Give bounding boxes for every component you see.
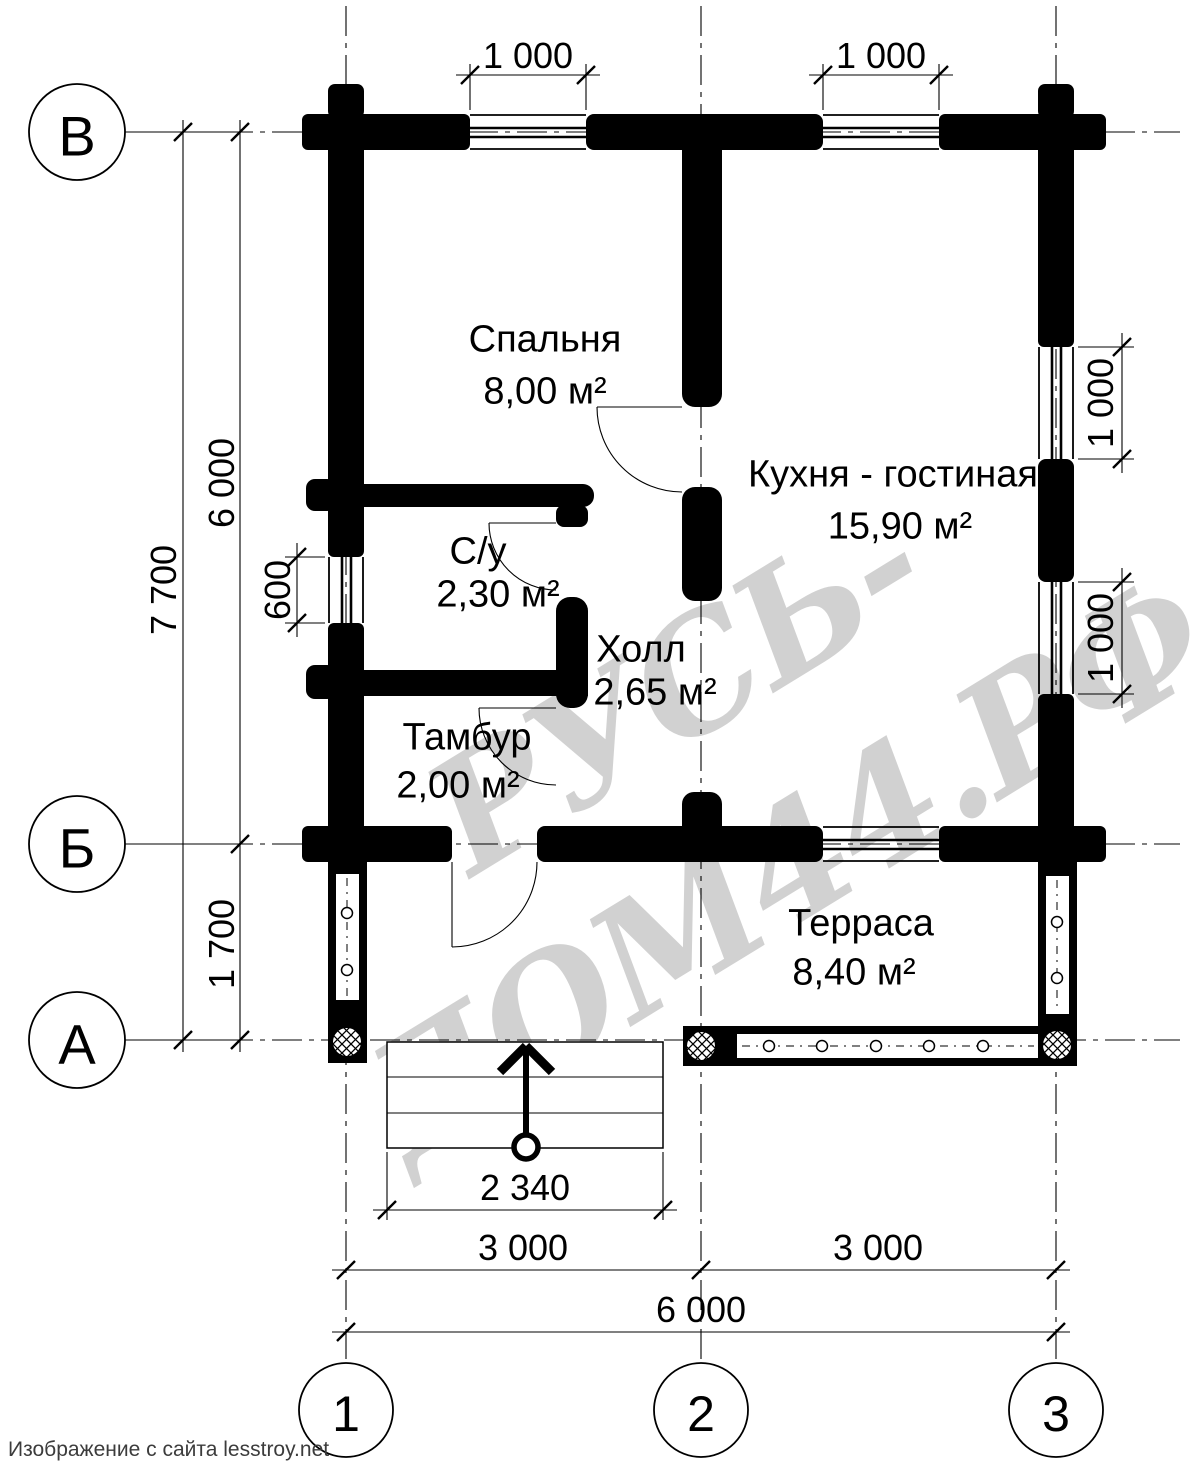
room-area-hall: 2,65 м² bbox=[593, 672, 716, 715]
wall-bottom-left bbox=[302, 826, 452, 862]
wall-top-left bbox=[302, 114, 470, 150]
baluster bbox=[342, 908, 353, 919]
axis-label-v: В bbox=[58, 104, 95, 169]
door-swing-arc bbox=[452, 862, 537, 947]
log-post bbox=[686, 1031, 716, 1061]
room-area-bathroom: 2,30 м² bbox=[436, 574, 559, 617]
door-jamb-bath bbox=[556, 505, 588, 527]
source-credit: Изображение с сайта lesstroy.net bbox=[8, 1438, 329, 1462]
wall-right-middle bbox=[1038, 459, 1074, 582]
dim-left-main: 6 000 bbox=[201, 438, 243, 528]
room-name-kitchen: Кухня - гостиная bbox=[748, 454, 1038, 497]
log-post bbox=[1042, 1030, 1072, 1060]
door-swing-arc bbox=[597, 407, 682, 492]
room-area-kitchen: 15,90 м² bbox=[828, 506, 972, 549]
floor-plan-page: РУСЬ-ДОМ44.РФ bbox=[0, 0, 1196, 1480]
dim-span-1-2: 3 000 bbox=[478, 1227, 568, 1269]
baluster bbox=[871, 1041, 882, 1052]
room-area-tambour: 2,00 м² bbox=[396, 765, 519, 808]
axis-label-b: Б bbox=[59, 816, 96, 881]
axis-label-3: 3 bbox=[1042, 1385, 1070, 1443]
room-name-bedroom: Спальня bbox=[469, 319, 622, 362]
arrow-start-circle bbox=[514, 1135, 538, 1159]
room-area-bedroom: 8,00 м² bbox=[483, 371, 606, 414]
wall-top-right bbox=[939, 114, 1106, 150]
axis-label-1: 1 bbox=[332, 1385, 360, 1443]
dim-right-window-lower: 1 000 bbox=[1080, 593, 1122, 683]
terrace-railing-bottom bbox=[683, 1026, 1077, 1066]
baluster bbox=[764, 1041, 775, 1052]
wall-right-upper bbox=[1038, 110, 1074, 347]
baluster bbox=[978, 1041, 989, 1052]
room-name-tambour: Тамбур bbox=[403, 717, 532, 760]
wall-axis2-middle bbox=[682, 487, 722, 601]
dim-total-width: 6 000 bbox=[656, 1289, 746, 1331]
dim-left-window: 600 bbox=[257, 560, 299, 620]
wall-axis2-lower bbox=[682, 792, 722, 862]
baluster bbox=[1052, 917, 1063, 928]
wall-axis2-upper bbox=[682, 130, 722, 407]
wall-bottom-right bbox=[939, 826, 1106, 862]
dim-top-window-right: 1 000 bbox=[836, 35, 926, 77]
railing-panel bbox=[737, 1034, 1038, 1058]
room-area-terrace: 8,40 м² bbox=[792, 952, 915, 995]
door-entry bbox=[452, 862, 537, 947]
wall-tambour bbox=[352, 670, 588, 696]
floor-plan-drawing bbox=[0, 0, 1196, 1480]
terrace-railing-right bbox=[1038, 862, 1077, 1066]
dim-span-2-3: 3 000 bbox=[833, 1227, 923, 1269]
wall-bedroom-bath bbox=[352, 484, 594, 507]
baluster bbox=[817, 1041, 828, 1052]
dim-right-window-upper: 1 000 bbox=[1080, 358, 1122, 448]
room-name-terrace: Терраса bbox=[788, 903, 934, 946]
log-stub-left bbox=[306, 479, 336, 511]
dim-left-total: 7 700 bbox=[143, 545, 185, 635]
log-stub-left bbox=[306, 665, 336, 699]
wall-bottom-middle bbox=[537, 826, 823, 862]
axis-label-a: А bbox=[58, 1012, 95, 1077]
room-name-hall: Холл bbox=[596, 629, 686, 672]
dim-stairs-width: 2 340 bbox=[480, 1167, 570, 1209]
room-name-bathroom: С/у bbox=[450, 531, 507, 574]
dim-left-terrace: 1 700 bbox=[201, 899, 243, 989]
baluster bbox=[1052, 973, 1063, 984]
log-post bbox=[332, 1027, 362, 1057]
baluster bbox=[342, 965, 353, 976]
porch-railing-left bbox=[328, 862, 367, 1063]
baluster bbox=[924, 1041, 935, 1052]
axis-label-2: 2 bbox=[687, 1385, 715, 1443]
door-bedroom bbox=[597, 407, 682, 492]
dim-top-window-left: 1 000 bbox=[483, 35, 573, 77]
